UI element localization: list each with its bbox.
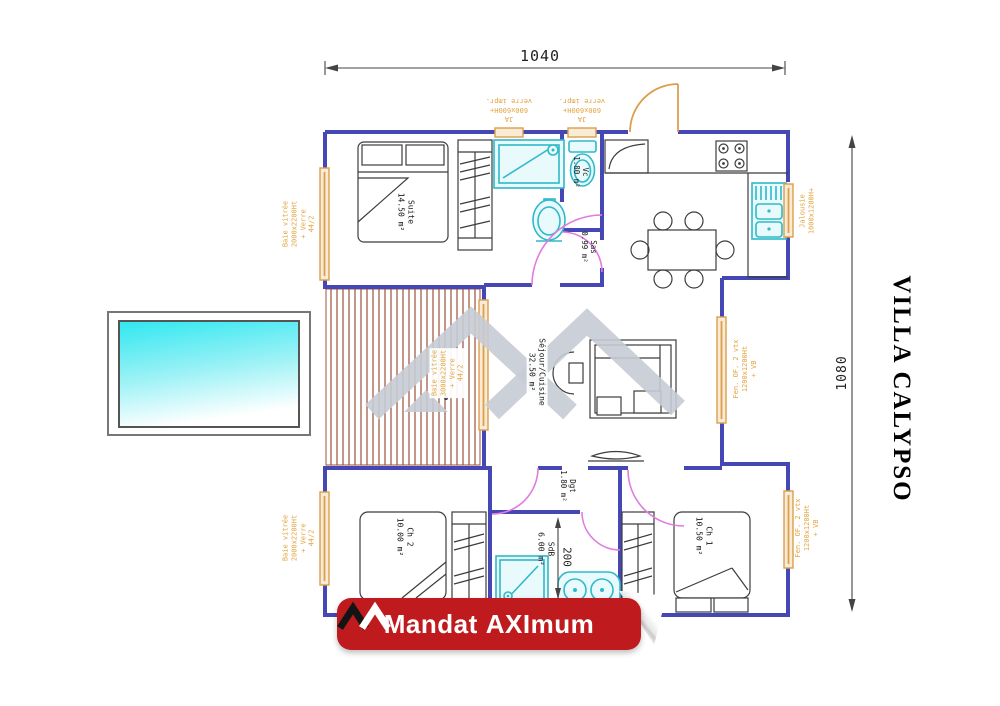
dimension-height-label: 1080 [835, 355, 851, 390]
window-label-ja-1: JA600x600H+verre impr. [486, 97, 532, 123]
room-label-ch2: Ch 210.00 m² [395, 518, 414, 557]
vanity-sink-icon [533, 199, 565, 241]
kitchen-sink-icon [752, 183, 786, 239]
ch1-wardrobe [622, 512, 654, 600]
stove-icon [716, 141, 747, 171]
window-label-fen-bottom: Fen. OF. 2 vtx1200x1200Ht+ VB [794, 498, 820, 557]
window-label-baie-left-1: Baie vitrée2000x2200Ht+ Verre44/2 [282, 201, 317, 247]
banner-text-left: Mandat [384, 609, 478, 640]
room-label-sdb: SdB6.00 m² [536, 532, 555, 566]
room-label-suite: Suite14.50 m² [396, 193, 415, 232]
dimension-sdb-label: 200 [560, 547, 573, 567]
page-title: VILLA CALYPSO [886, 275, 916, 502]
swimming-pool [108, 312, 310, 435]
dimension-width-label: 1040 [520, 47, 560, 65]
window-label-jalousie: Jalousie1000x1200H+ [798, 188, 816, 234]
room-label-ch1: Ch 110.50 m² [694, 517, 713, 556]
banner-text-right: AXImum [486, 609, 594, 640]
window-label-baie-left-2: Baie vitrée2000x2200Ht+ Verre44/2 [282, 515, 317, 561]
tv-console [588, 452, 644, 462]
suite-shower-icon [494, 140, 564, 188]
entrance-door [630, 84, 678, 132]
agency-banner: Mandat AXImum [337, 598, 641, 650]
maximum-logo-icon [337, 598, 391, 632]
window-label-ja-2: JA600x600H+verre impr. [559, 97, 605, 123]
room-label-sejour: Séjour/Cuisine32.50 m² [526, 336, 547, 407]
room-label-sas: Sas0.99 m² [580, 231, 598, 263]
floor-plan-page: 1040 1080 200 VILLA CALYPSO Suite14.50 m… [0, 0, 1000, 706]
dining-table [631, 212, 734, 288]
room-label-dgt: Dgt1.80 m² [559, 470, 577, 502]
room-label-vc: Vc1.80 m² [572, 156, 590, 188]
window-label-fen-mid: Fen. OF. 2 vtx1200x1200Ht+ VB [732, 339, 758, 398]
window-label-baie-deck: Baie vitrée3000x2200Ht+ Verre44/2 [430, 348, 467, 398]
suite-wardrobe [458, 140, 492, 250]
ch2-wardrobe [452, 512, 486, 600]
